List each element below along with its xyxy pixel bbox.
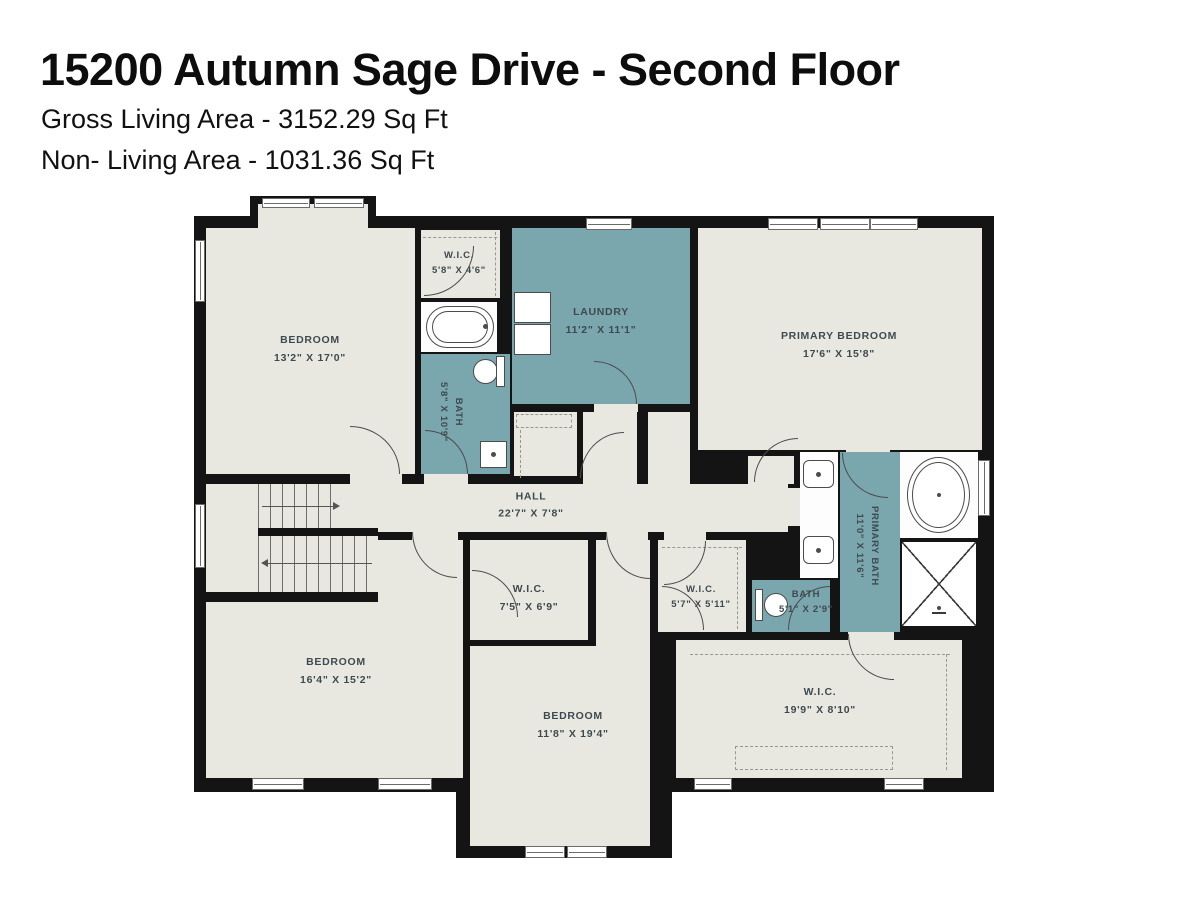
window [567, 846, 607, 858]
room-dims: 11'2" X 11'1" [566, 325, 637, 336]
stairs-up-arrow-head [333, 502, 340, 510]
room-label-bedroom-bottom-left: BEDROOM 16'4" X 15'2" [300, 657, 372, 685]
sink-drain-dot [816, 548, 821, 553]
page-title: 15200 Autumn Sage Drive - Second Floor [40, 44, 900, 96]
room-label-laundry: LAUNDRY 11'2" X 11'1" [566, 307, 637, 335]
toilet-tank [755, 589, 763, 621]
toilet-tank [496, 356, 505, 387]
room-dims: 5'8" X 10'9" [439, 382, 449, 442]
room-name: W.I.C. [432, 251, 486, 261]
window [195, 240, 205, 302]
window [694, 778, 732, 790]
non-living-area-text: Non- Living Area - 1031.36 Sq Ft [41, 145, 434, 176]
room-dims: 11'0" X 11'6" [855, 506, 865, 586]
closet-rod-line [737, 547, 739, 629]
wall-stub [637, 412, 648, 484]
room-dims: 16'4" X 15'2" [300, 675, 372, 686]
room-label-bedroom-bottom-mid: BEDROOM 11'8" X 19'4" [537, 711, 608, 739]
stairs-up-arrow-line [262, 506, 334, 507]
window [586, 218, 632, 230]
shower-head-glyph [932, 612, 946, 614]
closet-shelf [735, 746, 893, 770]
window [884, 778, 924, 790]
door-gap [350, 474, 402, 484]
room-name: BATH [779, 590, 833, 600]
door-gap [664, 532, 706, 540]
room-dims: 19'9" X 8'10" [784, 705, 856, 716]
door-gap [594, 404, 638, 412]
floor-bedroom-bottom-mid [470, 646, 650, 846]
stairs-down-arrow-head [261, 559, 268, 567]
bathtub-inner [432, 311, 488, 343]
room-dims: 5'8" X 4'6" [432, 266, 486, 276]
room-label-bath-top: BATH 5'8" X 10'9" [439, 382, 463, 442]
room-label-bedroom-top-left: BEDROOM 13'2" X 17'0" [274, 335, 346, 363]
faucet-dot [483, 324, 488, 329]
door-gap [788, 488, 800, 526]
room-label-primary-bath: PRIMARY BATH 11'0" X 11'6" [855, 506, 879, 586]
room-dims: 5'1" X 2'9" [779, 605, 833, 615]
room-name: BATH [454, 382, 464, 442]
sink-drain-dot [816, 472, 821, 477]
room-label-hall: HALL 22'7" X 7'8" [498, 492, 563, 519]
room-label-bath-small: BATH 5'1" X 2'9" [779, 590, 833, 614]
room-name: W.I.C. [671, 585, 730, 595]
door-gap [846, 444, 890, 452]
room-label-wic-top: W.I.C. 5'8" X 4'6" [432, 251, 486, 275]
room-name: BEDROOM [537, 711, 608, 722]
window [978, 460, 990, 516]
closet-rod-line [423, 237, 497, 239]
floor-stair-landing [206, 484, 258, 592]
door-gap [424, 474, 468, 484]
floor-plan-page: 15200 Autumn Sage Drive - Second Floor G… [0, 0, 1200, 900]
dryer-icon [514, 324, 551, 355]
wall-closet [514, 476, 580, 484]
closet-rod-line [520, 430, 522, 478]
room-name: BEDROOM [300, 657, 372, 668]
window [252, 778, 304, 790]
room-name: PRIMARY BATH [870, 506, 880, 586]
window [262, 198, 310, 208]
room-dims: 5'7" X 5'11" [671, 600, 730, 610]
room-name: W.I.C. [500, 584, 559, 595]
closet-rod-line [690, 654, 950, 656]
room-dims: 7'5" X 6'9" [500, 602, 559, 613]
closet-rod-line [946, 654, 948, 770]
room-dims: 11'8" X 19'4" [537, 729, 608, 740]
window [870, 218, 918, 230]
window [820, 218, 870, 230]
room-name: BEDROOM [274, 335, 346, 346]
window [195, 504, 205, 568]
closet-shelf [516, 414, 572, 428]
room-dims: 22'7" X 7'8" [498, 508, 563, 519]
gross-living-area-text: Gross Living Area - 3152.29 Sq Ft [41, 104, 448, 135]
room-name: LAUNDRY [566, 307, 637, 318]
wall-stair-divider [258, 528, 378, 536]
room-name: W.I.C. [784, 687, 856, 698]
room-name: HALL [498, 492, 563, 503]
room-dims: 17'6" X 15'8" [781, 349, 897, 360]
sink-drain-dot [491, 452, 496, 457]
window [768, 218, 818, 230]
room-dims: 13'2" X 17'0" [274, 353, 346, 364]
window [314, 198, 364, 208]
room-label-wic-small: W.I.C. 5'7" X 5'11" [671, 585, 730, 609]
room-label-primary-bedroom: PRIMARY BEDROOM 17'6" X 15'8" [781, 331, 897, 359]
room-label-wic-bottom-right: W.I.C. 19'9" X 8'10" [784, 687, 856, 715]
washer-icon [514, 292, 551, 323]
closet-rod-line [495, 232, 497, 296]
floor-bedroom-bottom-left [206, 602, 463, 778]
room-label-wic-middle: W.I.C. 7'5" X 6'9" [500, 584, 559, 612]
room-name: PRIMARY BEDROOM [781, 331, 897, 342]
drain-dot [937, 493, 941, 497]
stairs-down-arrow-line [268, 563, 372, 564]
shower-head-dot [937, 606, 941, 610]
toilet-icon [473, 359, 498, 384]
window [378, 778, 432, 790]
window [525, 846, 565, 858]
